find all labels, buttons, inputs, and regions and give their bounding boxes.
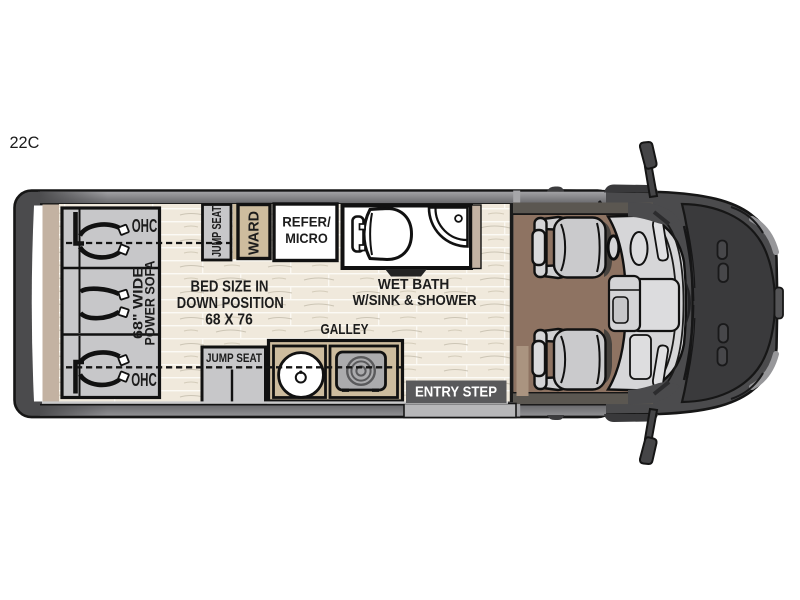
svg-text:MICRO: MICRO bbox=[285, 231, 328, 246]
svg-text:DOWN POSITION: DOWN POSITION bbox=[177, 295, 284, 312]
svg-text:GALLEY: GALLEY bbox=[321, 322, 369, 338]
svg-text:POWER SOFA: POWER SOFA bbox=[143, 260, 158, 345]
svg-text:ENTRY STEP: ENTRY STEP bbox=[415, 385, 497, 401]
svg-text:68 X 76: 68 X 76 bbox=[205, 312, 253, 329]
svg-text:REFER/: REFER/ bbox=[282, 214, 331, 229]
svg-text:22C: 22C bbox=[10, 134, 40, 152]
svg-text:W/SINK & SHOWER: W/SINK & SHOWER bbox=[353, 292, 477, 309]
svg-text:WARD: WARD bbox=[246, 211, 263, 255]
svg-text:BED SIZE IN: BED SIZE IN bbox=[191, 279, 269, 296]
svg-text:OHC: OHC bbox=[132, 216, 158, 236]
svg-text:JUMP SEAT: JUMP SEAT bbox=[209, 206, 224, 257]
svg-text:WET BATH: WET BATH bbox=[378, 276, 450, 293]
svg-text:JUMP SEAT: JUMP SEAT bbox=[206, 352, 262, 365]
svg-text:OHC: OHC bbox=[131, 370, 157, 390]
